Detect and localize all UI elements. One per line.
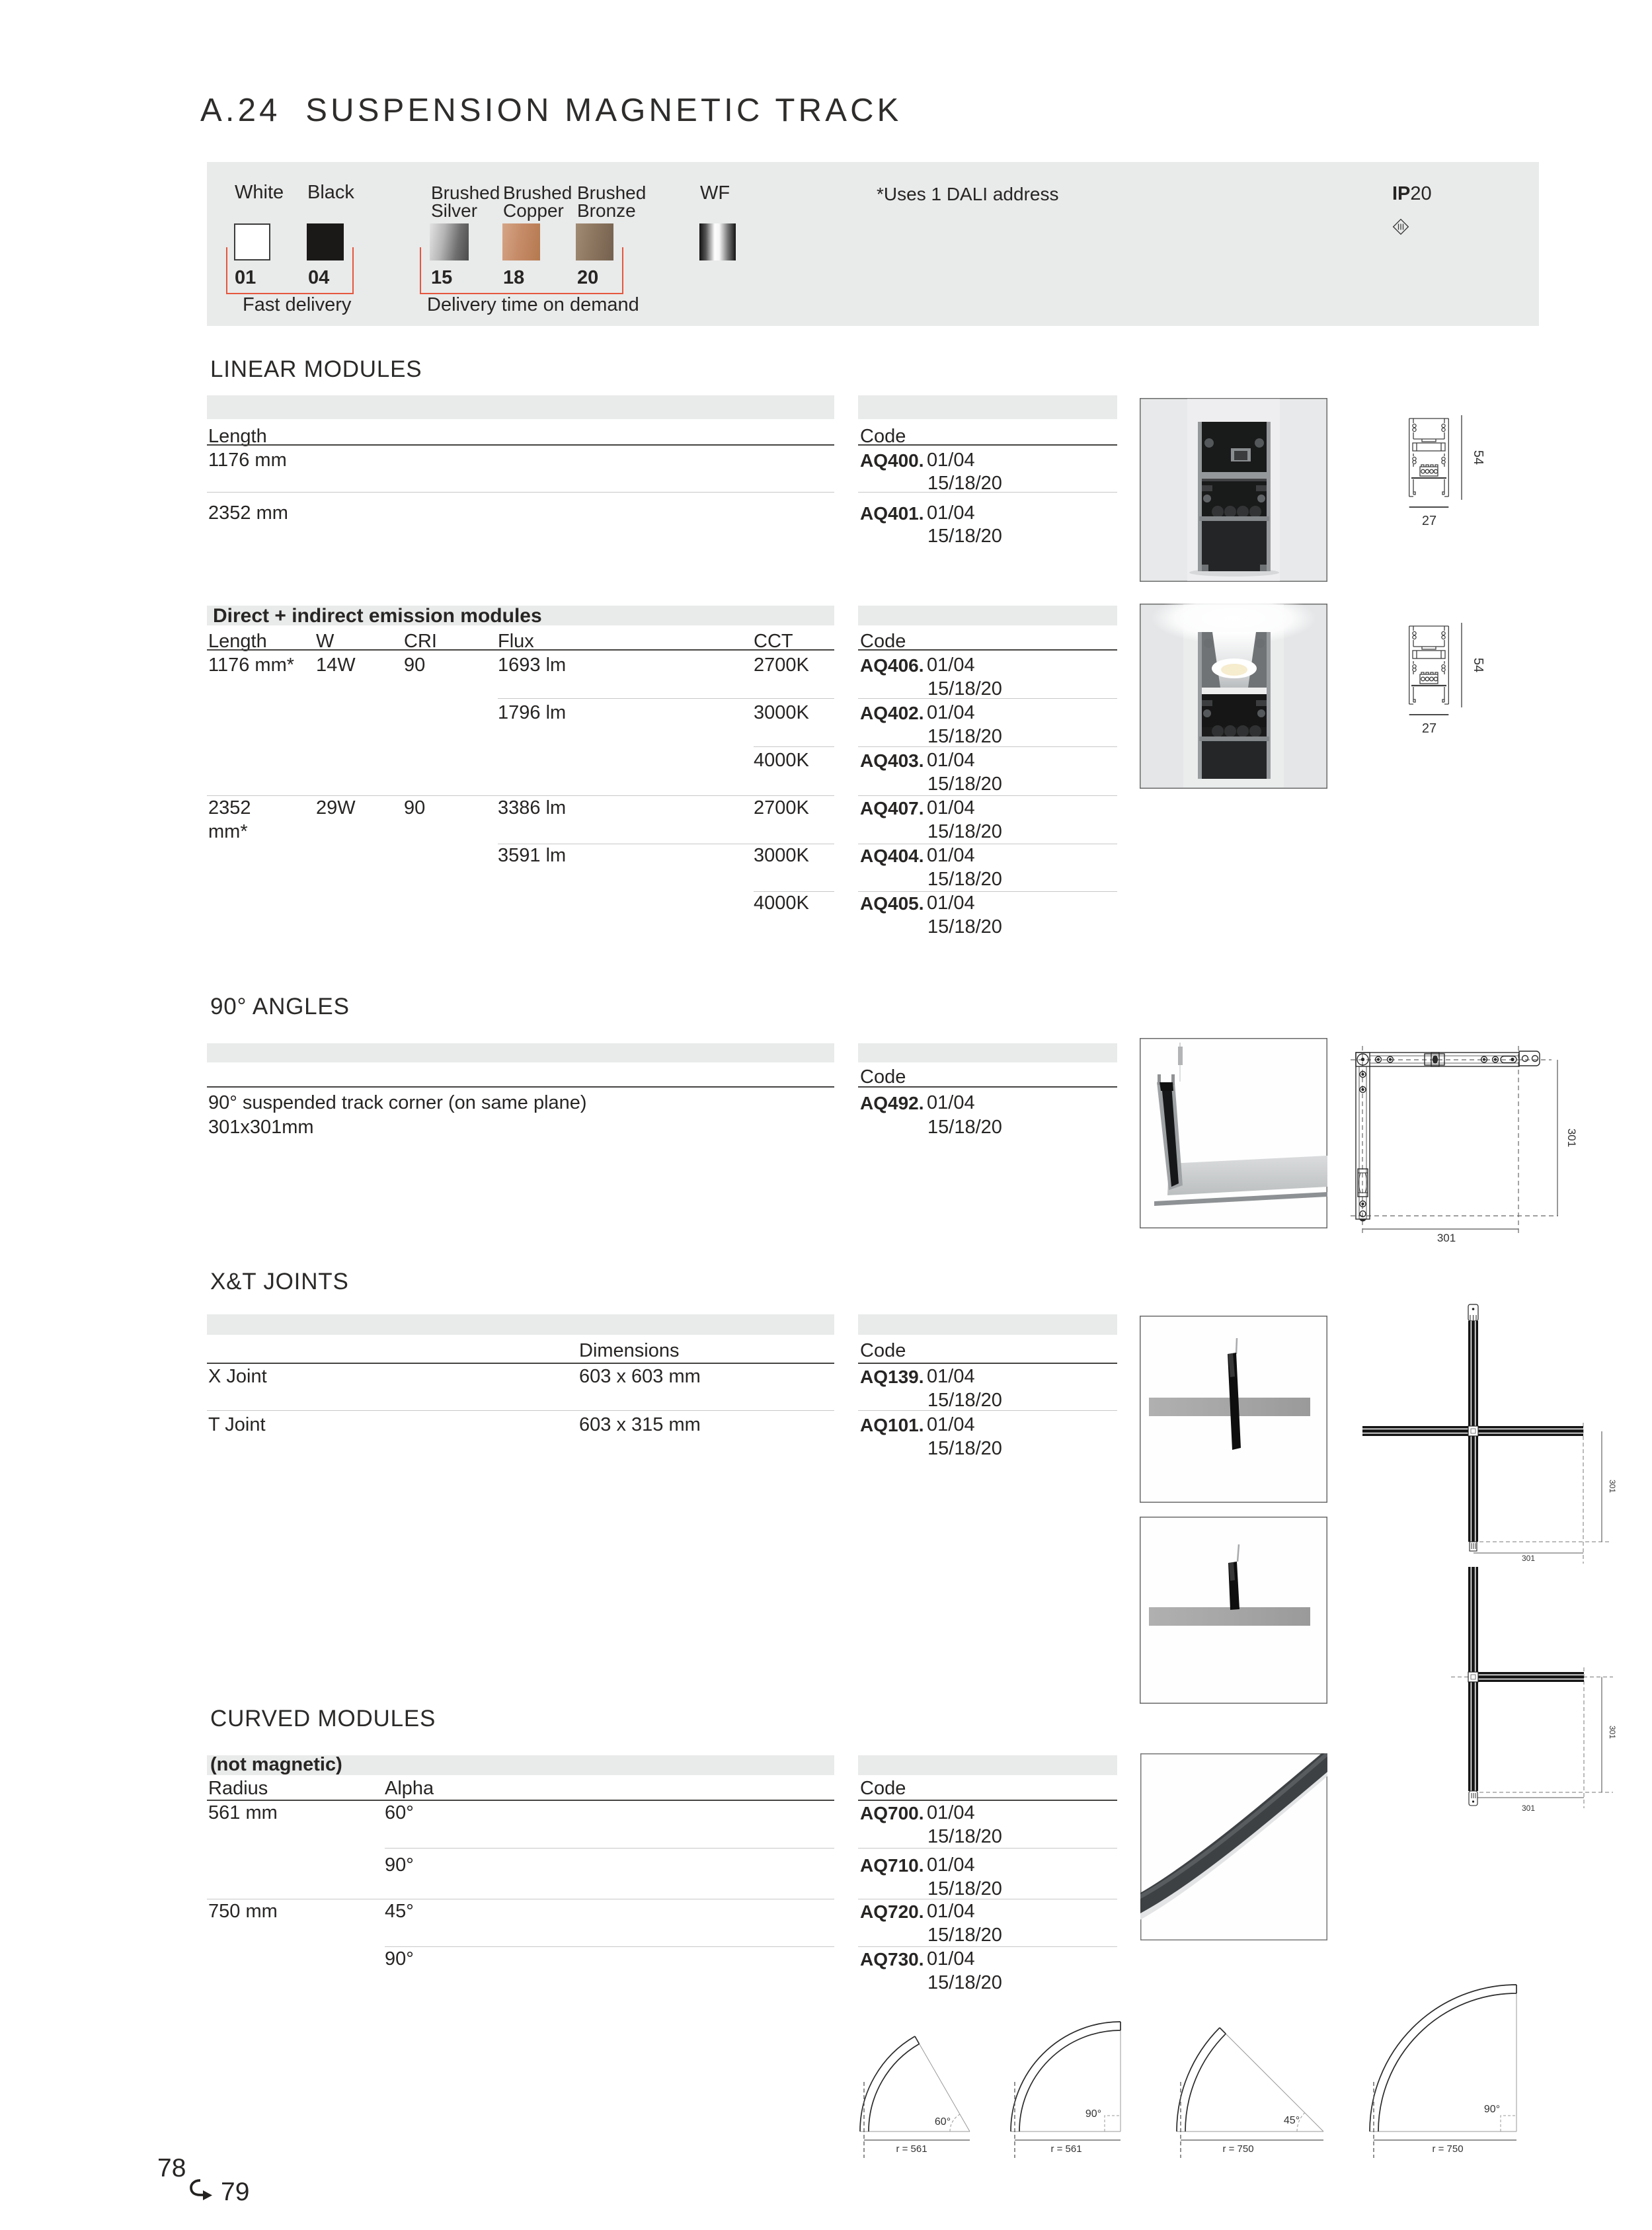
svg-text:54: 54 (1471, 450, 1485, 465)
svg-text:27: 27 (1422, 514, 1436, 528)
svg-text:54: 54 (1471, 658, 1485, 672)
svg-text:r = 561: r = 561 (1050, 2143, 1082, 2155)
svg-text:301: 301 (1522, 1804, 1535, 1813)
svg-text:27: 27 (1422, 721, 1436, 736)
svg-text:90°: 90° (1484, 2104, 1500, 2115)
svg-text:r = 750: r = 750 (1222, 2143, 1253, 2155)
svg-text:301: 301 (1565, 1129, 1578, 1147)
svg-text:301: 301 (1522, 1554, 1535, 1563)
svg-text:301: 301 (1608, 1726, 1617, 1739)
svg-text:45°: 45° (1284, 2115, 1300, 2126)
svg-text:90°: 90° (1085, 2108, 1101, 2120)
svg-text:r = 561: r = 561 (896, 2143, 927, 2155)
svg-text:301: 301 (1608, 1480, 1617, 1493)
svg-text:301: 301 (1437, 1232, 1456, 1244)
svg-text:r = 750: r = 750 (1432, 2143, 1463, 2155)
svg-text:60°: 60° (935, 2116, 951, 2128)
